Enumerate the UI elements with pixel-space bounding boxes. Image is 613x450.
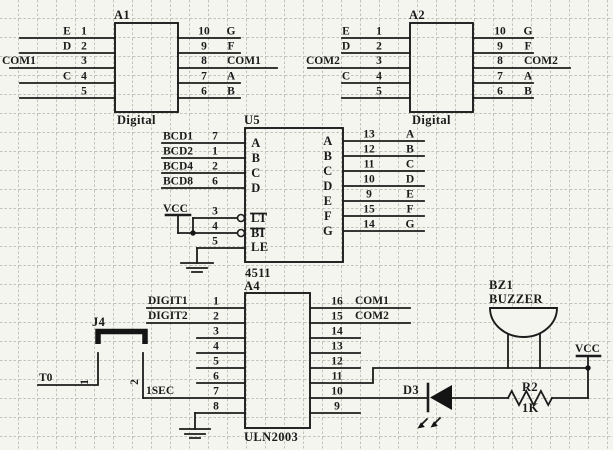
net-label: T0 [39, 372, 53, 384]
port-label: F [324, 209, 332, 223]
pin-number: 4 [81, 71, 87, 83]
pin-name: B [406, 144, 414, 156]
pin-number: 4 [212, 221, 218, 233]
pin-name: F [524, 41, 531, 53]
schematic-canvas: A1 Digital E D COM1 C 1 2 3 4 5 10 9 8 7… [0, 0, 613, 450]
active-low-bubble [238, 230, 245, 237]
pin-number: 1 [213, 296, 219, 308]
port-label: G [323, 224, 333, 238]
pin-number: 14 [331, 326, 343, 338]
pin-number: 9 [497, 41, 503, 53]
pin-name: B [227, 86, 235, 98]
pin-number: 1 [376, 26, 382, 38]
pin-name: A [524, 71, 533, 83]
port-label: E [324, 194, 333, 208]
port-label: D [251, 181, 260, 195]
u5-value: 4511 [245, 266, 271, 280]
pin-name: E [342, 26, 350, 38]
pin-number: 8 [213, 401, 219, 413]
pin-name: D [406, 174, 414, 186]
pin-name: A [227, 71, 236, 83]
pin-number: 9 [201, 41, 207, 53]
pin-number: 9 [334, 401, 340, 413]
pin-number: 13 [331, 341, 343, 353]
port-label: BI [251, 226, 265, 240]
pin-number: 10 [494, 26, 506, 38]
port-label: B [324, 149, 333, 163]
a1-value: Digital [117, 113, 156, 127]
pin-number: 9 [366, 189, 372, 201]
pin-number: 2 [213, 311, 219, 323]
pin-name: C [342, 71, 350, 83]
a2-ref: A2 [409, 8, 425, 22]
pin-name: C [406, 159, 414, 171]
pin-number: 15 [363, 204, 375, 216]
port-label: C [323, 164, 332, 178]
a4-value: ULN2003 [244, 430, 298, 444]
pin-number: 8 [497, 55, 503, 67]
net-label: DIGIT1 [148, 295, 188, 307]
pin-number: 10 [363, 174, 375, 186]
pin-number: 12 [363, 144, 375, 156]
pin-name: D [342, 41, 350, 53]
net-label: BCD2 [163, 146, 193, 158]
active-low-bubble [238, 215, 245, 222]
u5-ref: U5 [244, 113, 260, 127]
port-label: B [252, 151, 261, 165]
pin-name: D [63, 41, 71, 53]
pin-number: 5 [81, 86, 87, 98]
junction-dot [585, 365, 590, 370]
pin-number: 14 [363, 219, 375, 231]
port-label: A [323, 134, 332, 148]
bz1-ref: BZ1 [489, 278, 513, 292]
r2-ref: R2 [522, 380, 538, 394]
pin-number: 5 [376, 86, 382, 98]
net-label: COM2 [355, 310, 389, 322]
pin-number: 7 [201, 71, 207, 83]
pin-name: C [63, 71, 71, 83]
net-label: BCD4 [163, 161, 193, 173]
pin-number: 1 [81, 26, 87, 38]
pin-number: 5 [213, 356, 219, 368]
pin-name: G [524, 26, 533, 38]
net-label: COM1 [355, 295, 389, 307]
pin-name: G [406, 219, 415, 231]
pin-number: 15 [331, 311, 343, 323]
d3-ref: D3 [403, 383, 419, 397]
pin-name: E [406, 189, 414, 201]
pin-number: 2 [129, 379, 141, 385]
pin-number: 6 [497, 86, 503, 98]
pin-number: 7 [213, 386, 219, 398]
port-label: C [251, 166, 260, 180]
pin-number: 7 [497, 71, 503, 83]
pin-name: E [63, 26, 71, 38]
pin-number: 5 [212, 236, 218, 248]
pin-number: 4 [213, 341, 219, 353]
pin-number: 6 [212, 176, 218, 188]
junction-dot [190, 230, 195, 235]
net-label: DIGIT2 [148, 310, 188, 322]
net-label: 1SEC [146, 385, 174, 397]
pin-name: F [406, 204, 413, 216]
net-label: COM1 [2, 55, 36, 67]
pin-number: 3 [376, 55, 382, 67]
port-label: A [251, 136, 260, 150]
vcc-label: VCC [575, 343, 600, 355]
vcc-label: VCC [163, 203, 188, 215]
pin-number: 1 [212, 146, 218, 158]
pin-number: 11 [332, 371, 343, 383]
pin-number: 3 [213, 326, 219, 338]
pin-number: 10 [198, 26, 210, 38]
pin-number: 8 [201, 55, 207, 67]
pin-number: 2 [212, 161, 218, 173]
pin-number: 12 [331, 356, 343, 368]
j4-ref: J4 [92, 315, 106, 329]
net-label: COM2 [306, 55, 340, 67]
net-label: BCD1 [163, 131, 193, 143]
pin-number: 2 [376, 41, 382, 53]
port-label: LT [251, 211, 268, 225]
pin-number: 4 [376, 71, 382, 83]
pin-number: 16 [331, 296, 343, 308]
a4-ref: A4 [244, 279, 260, 293]
net-label: COM1 [227, 55, 261, 67]
net-label: COM2 [524, 55, 558, 67]
port-label: LE [251, 240, 268, 254]
pin-name: G [227, 26, 236, 38]
r2-value: 1K [522, 401, 539, 415]
pin-number: 1 [79, 379, 91, 385]
pin-number: 13 [363, 129, 375, 141]
pin-number: 10 [331, 386, 343, 398]
bz1-value: BUZZER [489, 292, 543, 306]
pin-name: A [406, 129, 415, 141]
net-label: BCD8 [163, 176, 193, 188]
pin-number: 2 [81, 41, 87, 53]
schematic-page: A1 Digital E D COM1 C 1 2 3 4 5 10 9 8 7… [0, 0, 613, 450]
pin-name: F [227, 41, 234, 53]
port-label: D [323, 179, 332, 193]
a2-value: Digital [412, 113, 451, 127]
pin-number: 11 [364, 159, 375, 171]
pin-number: 6 [213, 371, 219, 383]
pin-name: B [524, 86, 532, 98]
pin-number: 3 [81, 55, 87, 67]
pin-number: 6 [201, 86, 207, 98]
pin-number: 3 [212, 206, 218, 218]
pin-number: 7 [212, 131, 218, 143]
a1-ref: A1 [114, 8, 130, 22]
